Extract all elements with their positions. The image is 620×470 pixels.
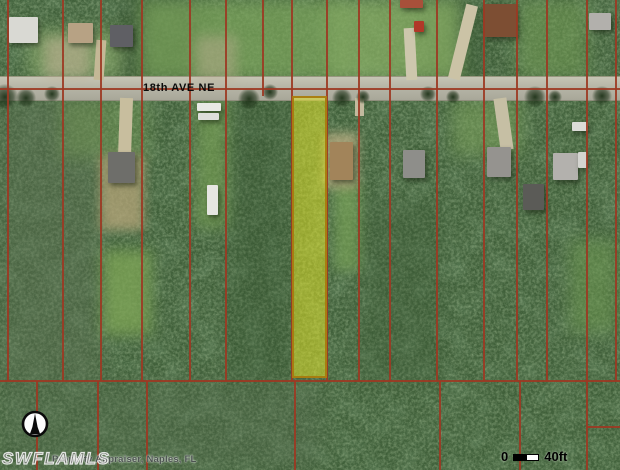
forest-shade-patch [230,98,292,382]
scale-bar: 0 40ft [501,449,567,464]
scale-end-label: 40ft [544,449,567,464]
parcel-boundary-line [483,0,485,381]
scale-bar-graphic [513,454,539,461]
building-roof [330,142,353,180]
parcel-boundary-line [436,0,438,381]
grass-clearing [334,183,360,271]
mls-watermark: SWFLAMLS [2,449,110,469]
building-roof [198,113,219,120]
parcel-boundary-line [141,0,143,381]
parcel-boundary-line [615,0,617,381]
grass-clearing [570,240,618,332]
parcel-boundary-line [294,381,296,470]
building-roof [487,147,511,177]
tree-canopy [548,90,562,104]
tree-canopy [238,88,260,110]
parcel-boundary-line [358,0,360,381]
tree-canopy [16,88,36,108]
building-roof [400,0,423,8]
tree-canopy [262,84,278,100]
building-roof [108,152,135,183]
aerial-parcel-map[interactable]: 18th AVE NE 0 40ft Property Appraiser, N… [0,0,620,470]
parcel-boundary-line [516,0,518,381]
grass-clearing [140,0,340,80]
building-roof [403,150,425,178]
dirt-patch [196,36,236,80]
grass-clearing [60,98,150,158]
building-roof [197,103,221,111]
building-roof [414,21,424,32]
building-roof [68,23,93,43]
grass-clearing [518,0,588,78]
parcel-boundary-line [7,0,9,381]
street-label: 18th AVE NE [143,82,215,94]
tree-canopy [446,90,460,104]
grass-clearing [103,250,151,335]
grass-clearing [330,0,460,80]
parcel-boundary-line [546,0,548,381]
parcel-boundary-line [189,0,191,381]
driveway [118,98,133,158]
building-roof [9,17,38,43]
building-roof [483,4,517,37]
north-arrow-icon [21,410,49,438]
parcel-boundary-line [62,0,64,381]
building-roof [207,185,218,215]
parcel-boundary-line [586,0,588,381]
building-roof [589,13,611,30]
parcel-boundary-line [0,88,620,90]
tree-canopy [332,88,352,108]
scale-start-label: 0 [501,449,508,464]
forest-shade-patch [360,200,440,382]
parcel-boundary-line [0,380,620,382]
parcel-boundary-line [225,0,227,381]
building-roof [553,153,578,180]
dirt-patch [45,38,90,78]
building-roof [523,184,544,210]
parcel-boundary-line [100,0,102,381]
building-roof [110,25,133,47]
parcel-boundary-line [587,426,620,428]
highlighted-parcel[interactable] [292,96,327,378]
parcel-boundary-line [262,0,264,96]
parcel-boundary-line [439,381,441,470]
parcel-boundary-line [389,0,391,381]
